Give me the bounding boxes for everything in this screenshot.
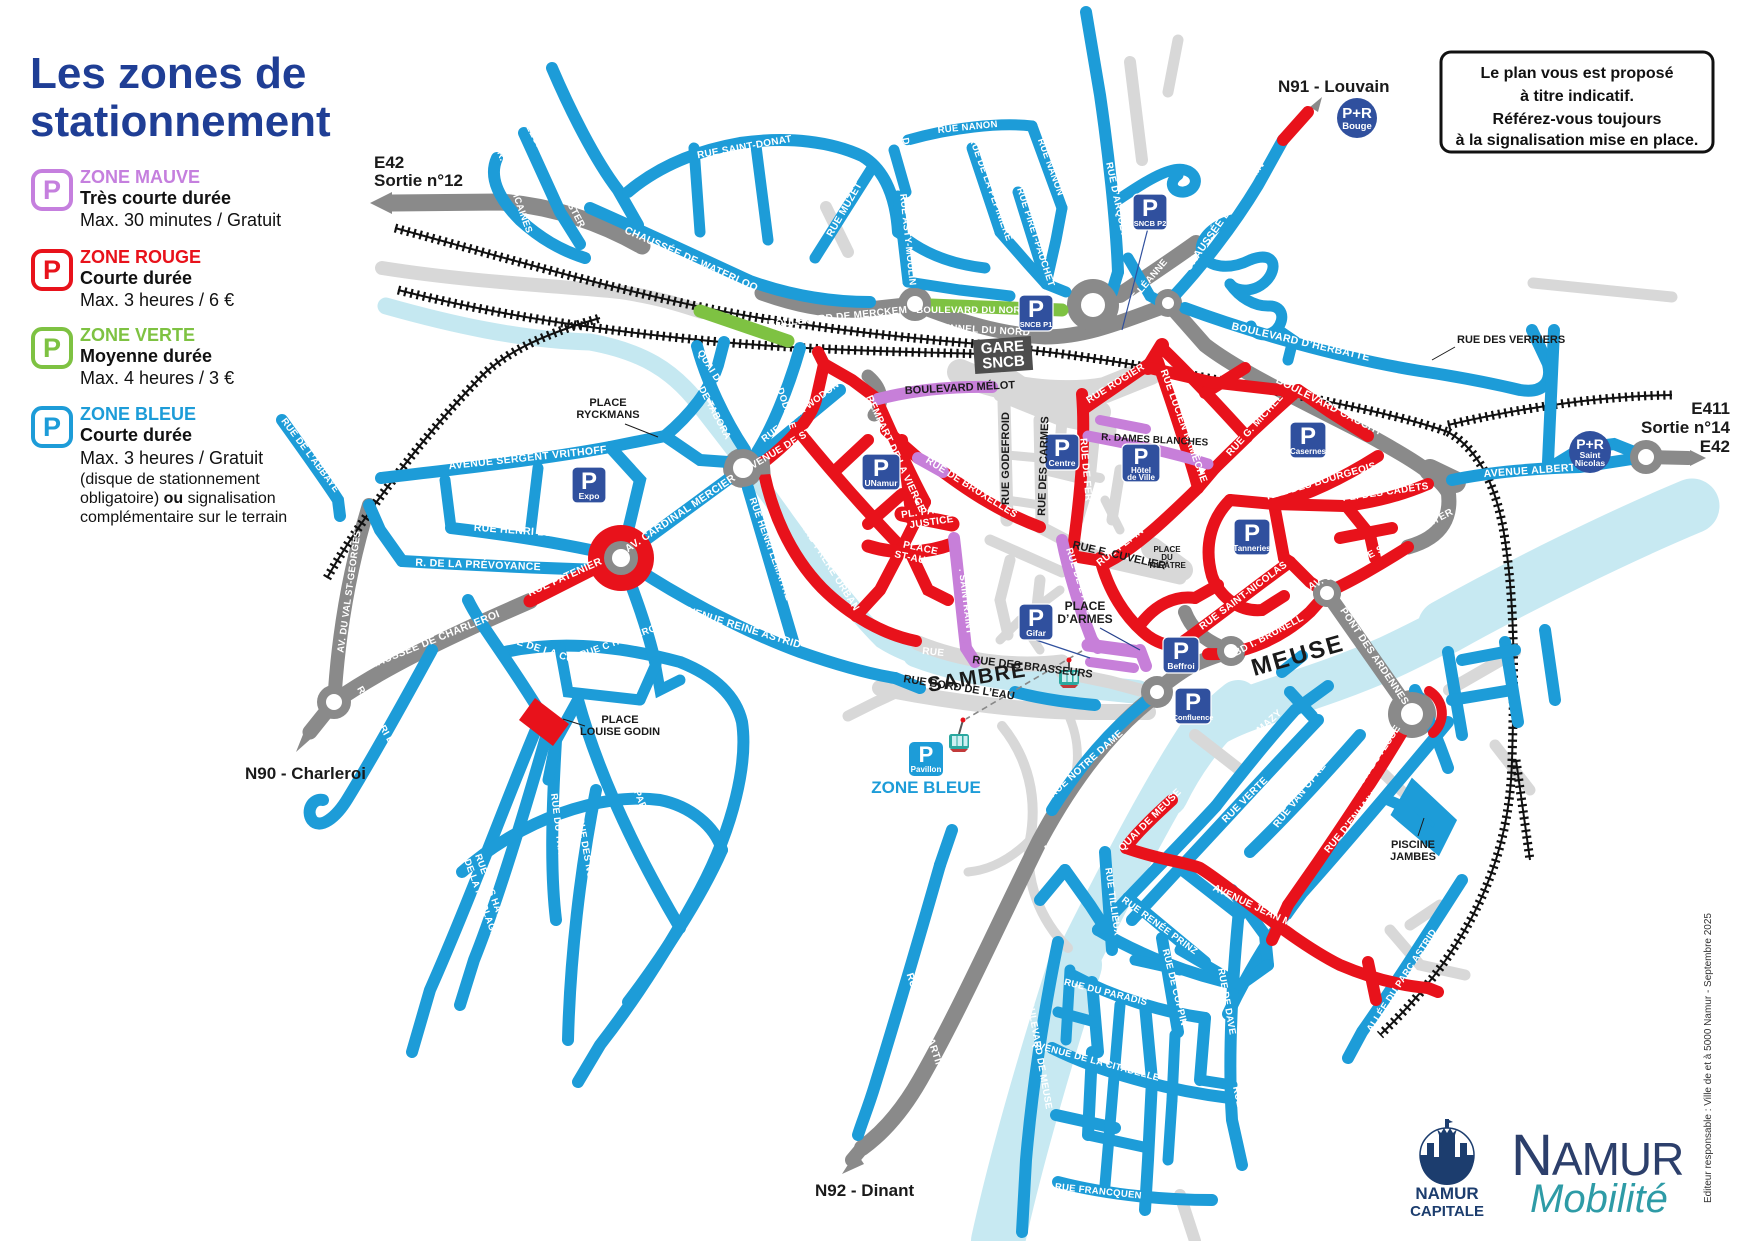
svg-text:E42: E42 <box>1700 437 1730 456</box>
svg-text:PLACE: PLACE <box>589 397 626 409</box>
svg-text:RUE DE L’ABBAYE: RUE DE L’ABBAYE <box>278 416 341 495</box>
svg-text:Beffroi: Beffroi <box>1167 661 1194 671</box>
svg-text:P: P <box>1185 689 1201 716</box>
svg-text:RUE FRANCQUEN: RUE FRANCQUEN <box>1054 1181 1142 1201</box>
svg-text:AV. COMTE DE SMET DE NAYER: AV. COMTE DE SMET DE NAYER <box>1307 507 1456 593</box>
svg-text:RUE JEAN CIPARISSE: RUE JEAN CIPARISSE <box>607 730 657 833</box>
svg-text:Expo: Expo <box>579 491 600 501</box>
svg-text:PLACE: PLACE <box>1065 599 1106 613</box>
svg-text:SNCB: SNCB <box>982 353 1026 373</box>
svg-text:Mobilité: Mobilité <box>1530 1177 1668 1221</box>
svg-text:P: P <box>1028 296 1044 323</box>
svg-text:Centre: Centre <box>1049 458 1076 468</box>
svg-text:stationnement: stationnement <box>30 97 331 146</box>
svg-text:P: P <box>43 412 61 442</box>
svg-text:PLACE: PLACE <box>601 714 638 726</box>
svg-text:E411: E411 <box>1691 399 1730 418</box>
svg-text:(disque de stationnement: (disque de stationnement <box>80 471 260 488</box>
svg-text:Sortie n°14: Sortie n°14 <box>1641 418 1731 437</box>
svg-text:Moyenne durée: Moyenne durée <box>80 346 212 366</box>
svg-text:SNCB P2: SNCB P2 <box>1134 219 1167 228</box>
svg-text:Sortie n°12: Sortie n°12 <box>374 171 463 190</box>
svg-text:N91 - Louvain: N91 - Louvain <box>1278 77 1389 96</box>
svg-text:Gifar: Gifar <box>1026 628 1047 638</box>
svg-text:complémentaire sur le terrain: complémentaire sur le terrain <box>80 509 287 526</box>
svg-text:BOULEVARD D’HERBATTE: BOULEVARD D’HERBATTE <box>1230 320 1371 364</box>
svg-text:Référez-vous toujours: Référez-vous toujours <box>1493 111 1662 128</box>
svg-text:obligatoire) ou signalisation: obligatoire) ou signalisation <box>80 490 276 507</box>
svg-text:Courte durée: Courte durée <box>80 268 192 288</box>
svg-text:UNamur: UNamur <box>864 478 898 488</box>
svg-text:E42: E42 <box>374 153 404 172</box>
svg-text:R. DE LA PRÉVOYANCE: R. DE LA PRÉVOYANCE <box>415 556 541 573</box>
svg-text:Bouge: Bouge <box>1342 121 1372 132</box>
svg-text:ZONE MAUVE: ZONE MAUVE <box>80 167 200 187</box>
svg-text:RUE DE LA PÉPINIÈRE: RUE DE LA PÉPINIÈRE <box>966 136 1014 243</box>
svg-text:CHAUSSÉE DE WATERLOO: CHAUSSÉE DE WATERLOO <box>623 223 760 294</box>
svg-text:P: P <box>43 175 61 205</box>
svg-text:P: P <box>1142 195 1158 222</box>
svg-text:LOUISE GODIN: LOUISE GODIN <box>580 726 660 738</box>
svg-text:Confluence: Confluence <box>1173 713 1214 722</box>
svg-text:CAPITALE: CAPITALE <box>1410 1203 1484 1220</box>
svg-text:Tanneries: Tanneries <box>1233 544 1271 553</box>
svg-text:à titre indicatif.: à titre indicatif. <box>1520 88 1634 105</box>
svg-text:de Ville: de Ville <box>1127 473 1155 482</box>
svg-text:P: P <box>1300 423 1316 450</box>
svg-text:P: P <box>919 742 934 767</box>
svg-text:P: P <box>43 333 61 363</box>
svg-text:RUE DES VERRIERS: RUE DES VERRIERS <box>1457 334 1565 346</box>
svg-text:ZONE BLEUE: ZONE BLEUE <box>80 404 196 424</box>
svg-text:Max. 3 heures / Gratuit: Max. 3 heures / Gratuit <box>80 448 263 468</box>
svg-text:RUE: RUE <box>922 646 945 659</box>
svg-text:ZONE VERTE: ZONE VERTE <box>80 325 195 345</box>
svg-text:P+R: P+R <box>1342 105 1372 122</box>
svg-text:ZONE BLEUE: ZONE BLEUE <box>871 778 981 797</box>
svg-text:RUE DES CARMES: RUE DES CARMES <box>1036 416 1051 516</box>
svg-text:Très courte durée: Très courte durée <box>80 188 231 208</box>
svg-text:PISCINE: PISCINE <box>1391 839 1435 851</box>
svg-text:Editeur responsable : Ville de: Editeur responsable : Ville de et à 5000… <box>1703 913 1714 1203</box>
svg-text:N92 - Dinant: N92 - Dinant <box>815 1181 915 1200</box>
svg-text:AV. DU VAL ST-GEORGES: AV. DU VAL ST-GEORGES <box>336 530 364 653</box>
svg-text:RUE GODEFROID: RUE GODEFROID <box>1000 412 1012 505</box>
svg-text:Les zones de: Les zones de <box>30 49 306 98</box>
svg-text:JAMBES: JAMBES <box>1390 851 1436 863</box>
svg-text:à la signalisation mise en pla: à la signalisation mise en place. <box>1456 132 1699 149</box>
svg-text:N90 - Charleroi: N90 - Charleroi <box>245 764 366 783</box>
svg-text:Casernes: Casernes <box>1290 447 1327 456</box>
svg-text:Max. 3 heures / 6 €: Max. 3 heures / 6 € <box>80 290 234 310</box>
svg-text:NAMUR: NAMUR <box>1415 1184 1478 1203</box>
svg-text:Max. 4 heures / 3 €: Max. 4 heures / 3 € <box>80 368 234 388</box>
svg-text:ZONE ROUGE: ZONE ROUGE <box>80 247 201 267</box>
svg-text:Le plan vous est proposé: Le plan vous est proposé <box>1481 65 1674 82</box>
svg-text:TUNNEL DU NORD: TUNNEL DU NORD <box>936 323 1030 339</box>
svg-text:D’ARMES: D’ARMES <box>1057 612 1112 626</box>
svg-text:RYCKMANS: RYCKMANS <box>576 409 639 421</box>
svg-text:P: P <box>43 255 61 285</box>
svg-text:P: P <box>1244 520 1260 547</box>
svg-text:RUE NANON: RUE NANON <box>937 119 998 136</box>
svg-text:Courte durée: Courte durée <box>80 425 192 445</box>
svg-text:Pavillon: Pavillon <box>911 765 942 774</box>
svg-text:SNCB P1: SNCB P1 <box>1020 320 1053 329</box>
svg-text:BOULEVARD DU NORD: BOULEVARD DU NORD <box>916 305 1028 316</box>
svg-text:Max. 30 minutes / Gratuit: Max. 30 minutes / Gratuit <box>80 210 281 230</box>
svg-text:Nicolas: Nicolas <box>1575 458 1606 468</box>
